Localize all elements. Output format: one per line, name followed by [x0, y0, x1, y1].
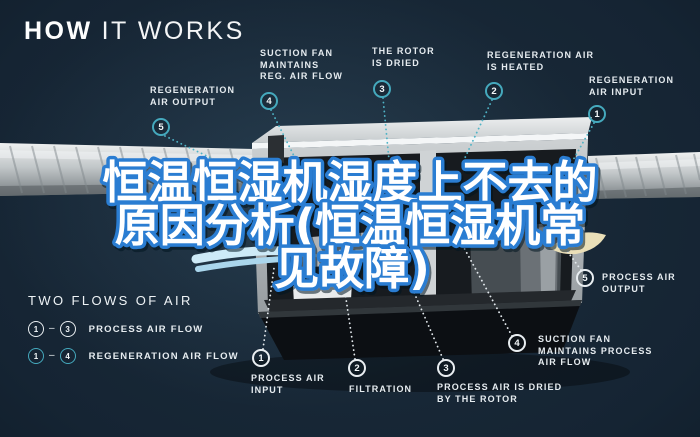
- label-line: REG. AIR FLOW: [260, 71, 343, 83]
- label-line: AIR INPUT: [589, 87, 674, 99]
- legend-dash: –: [49, 321, 55, 337]
- label-line: OUTPUT: [602, 284, 676, 296]
- step-badge-reg-5: 5: [152, 118, 170, 136]
- callout-suction-fan-process: SUCTION FAN MAINTAINS PROCESS AIR FLOW: [538, 334, 653, 369]
- legend-circle: 1: [28, 348, 44, 364]
- label-line: SUCTION FAN: [538, 334, 653, 346]
- legend-row-process: 1 – 3 PROCESS AIR FLOW: [28, 321, 239, 337]
- callout-process-air-dried: PROCESS AIR IS DRIED BY THE ROTOR: [437, 382, 562, 405]
- title-bold: HOW: [24, 17, 93, 45]
- right-duct: [588, 152, 700, 199]
- label-line: AIR OUTPUT: [150, 97, 235, 109]
- step-badge-reg-2: 2: [485, 82, 503, 100]
- label-line: SUCTION FAN: [260, 48, 343, 60]
- legend-two-flows: TWO FLOWS OF AIR 1 – 3 PROCESS AIR FLOW …: [28, 293, 239, 375]
- step-badge-reg-4: 4: [260, 92, 278, 110]
- callout-reg-air-heated: REGENERATION AIR IS HEATED: [487, 50, 594, 73]
- legend-label: REGENERATION AIR FLOW: [89, 351, 239, 362]
- legend-circle: 4: [60, 348, 76, 364]
- legend-heading: TWO FLOWS OF AIR: [28, 293, 239, 308]
- legend-row-regeneration: 1 – 4 REGENERATION AIR FLOW: [28, 348, 239, 364]
- label-line: MAINTAINS: [260, 60, 343, 72]
- label-line: PROCESS AIR: [251, 373, 325, 385]
- legend-label: PROCESS AIR FLOW: [89, 324, 204, 335]
- legend-circle: 3: [60, 321, 76, 337]
- infographic-canvas: 恒温恒湿机湿度上不去的 原因分析(恒温恒湿机常 见故障) HOWIT WORKS…: [0, 0, 700, 437]
- page-title: HOWIT WORKS: [24, 17, 245, 46]
- label-line: BY THE ROTOR: [437, 394, 562, 406]
- label-line: REGENERATION: [150, 85, 235, 97]
- legend-circle: 1: [28, 321, 44, 337]
- step-badge-proc-3: 3: [437, 359, 455, 377]
- label-line: IS HEATED: [487, 62, 594, 74]
- label-line: PROCESS AIR: [602, 272, 676, 284]
- legend-dash: –: [49, 348, 55, 364]
- step-badge-proc-4: 4: [508, 334, 526, 352]
- step-badge-proc-2: 2: [348, 359, 366, 377]
- label-line: IS DRIED: [372, 58, 435, 70]
- label-line: INPUT: [251, 385, 325, 397]
- label-line: AIR FLOW: [538, 357, 653, 369]
- step-badge-reg-1: 1: [588, 105, 606, 123]
- label-line: REGENERATION: [589, 75, 674, 87]
- title-light: IT WORKS: [102, 17, 245, 45]
- label-line: THE ROTOR: [372, 46, 435, 58]
- label-line: FILTRATION: [349, 384, 412, 396]
- callout-filtration: FILTRATION: [349, 384, 412, 396]
- callout-process-air-input: PROCESS AIR INPUT: [251, 373, 325, 396]
- label-line: MAINTAINS PROCESS: [538, 346, 653, 358]
- callout-rotor-dried: THE ROTOR IS DRIED: [372, 46, 435, 69]
- step-badge-proc-5: 5: [576, 269, 594, 287]
- step-badge-proc-1: 1: [252, 349, 270, 367]
- callout-process-air-output: PROCESS AIR OUTPUT: [602, 272, 676, 295]
- step-badge-reg-3: 3: [373, 80, 391, 98]
- callout-regeneration-air-output: REGENERATION AIR OUTPUT: [150, 85, 235, 108]
- label-line: PROCESS AIR IS DRIED: [437, 382, 562, 394]
- headline-line-3: 见故障): [274, 242, 430, 295]
- label-line: REGENERATION AIR: [487, 50, 594, 62]
- callout-reg-air-input: REGENERATION AIR INPUT: [589, 75, 674, 98]
- callout-suction-fan-reg: SUCTION FAN MAINTAINS REG. AIR FLOW: [260, 48, 343, 83]
